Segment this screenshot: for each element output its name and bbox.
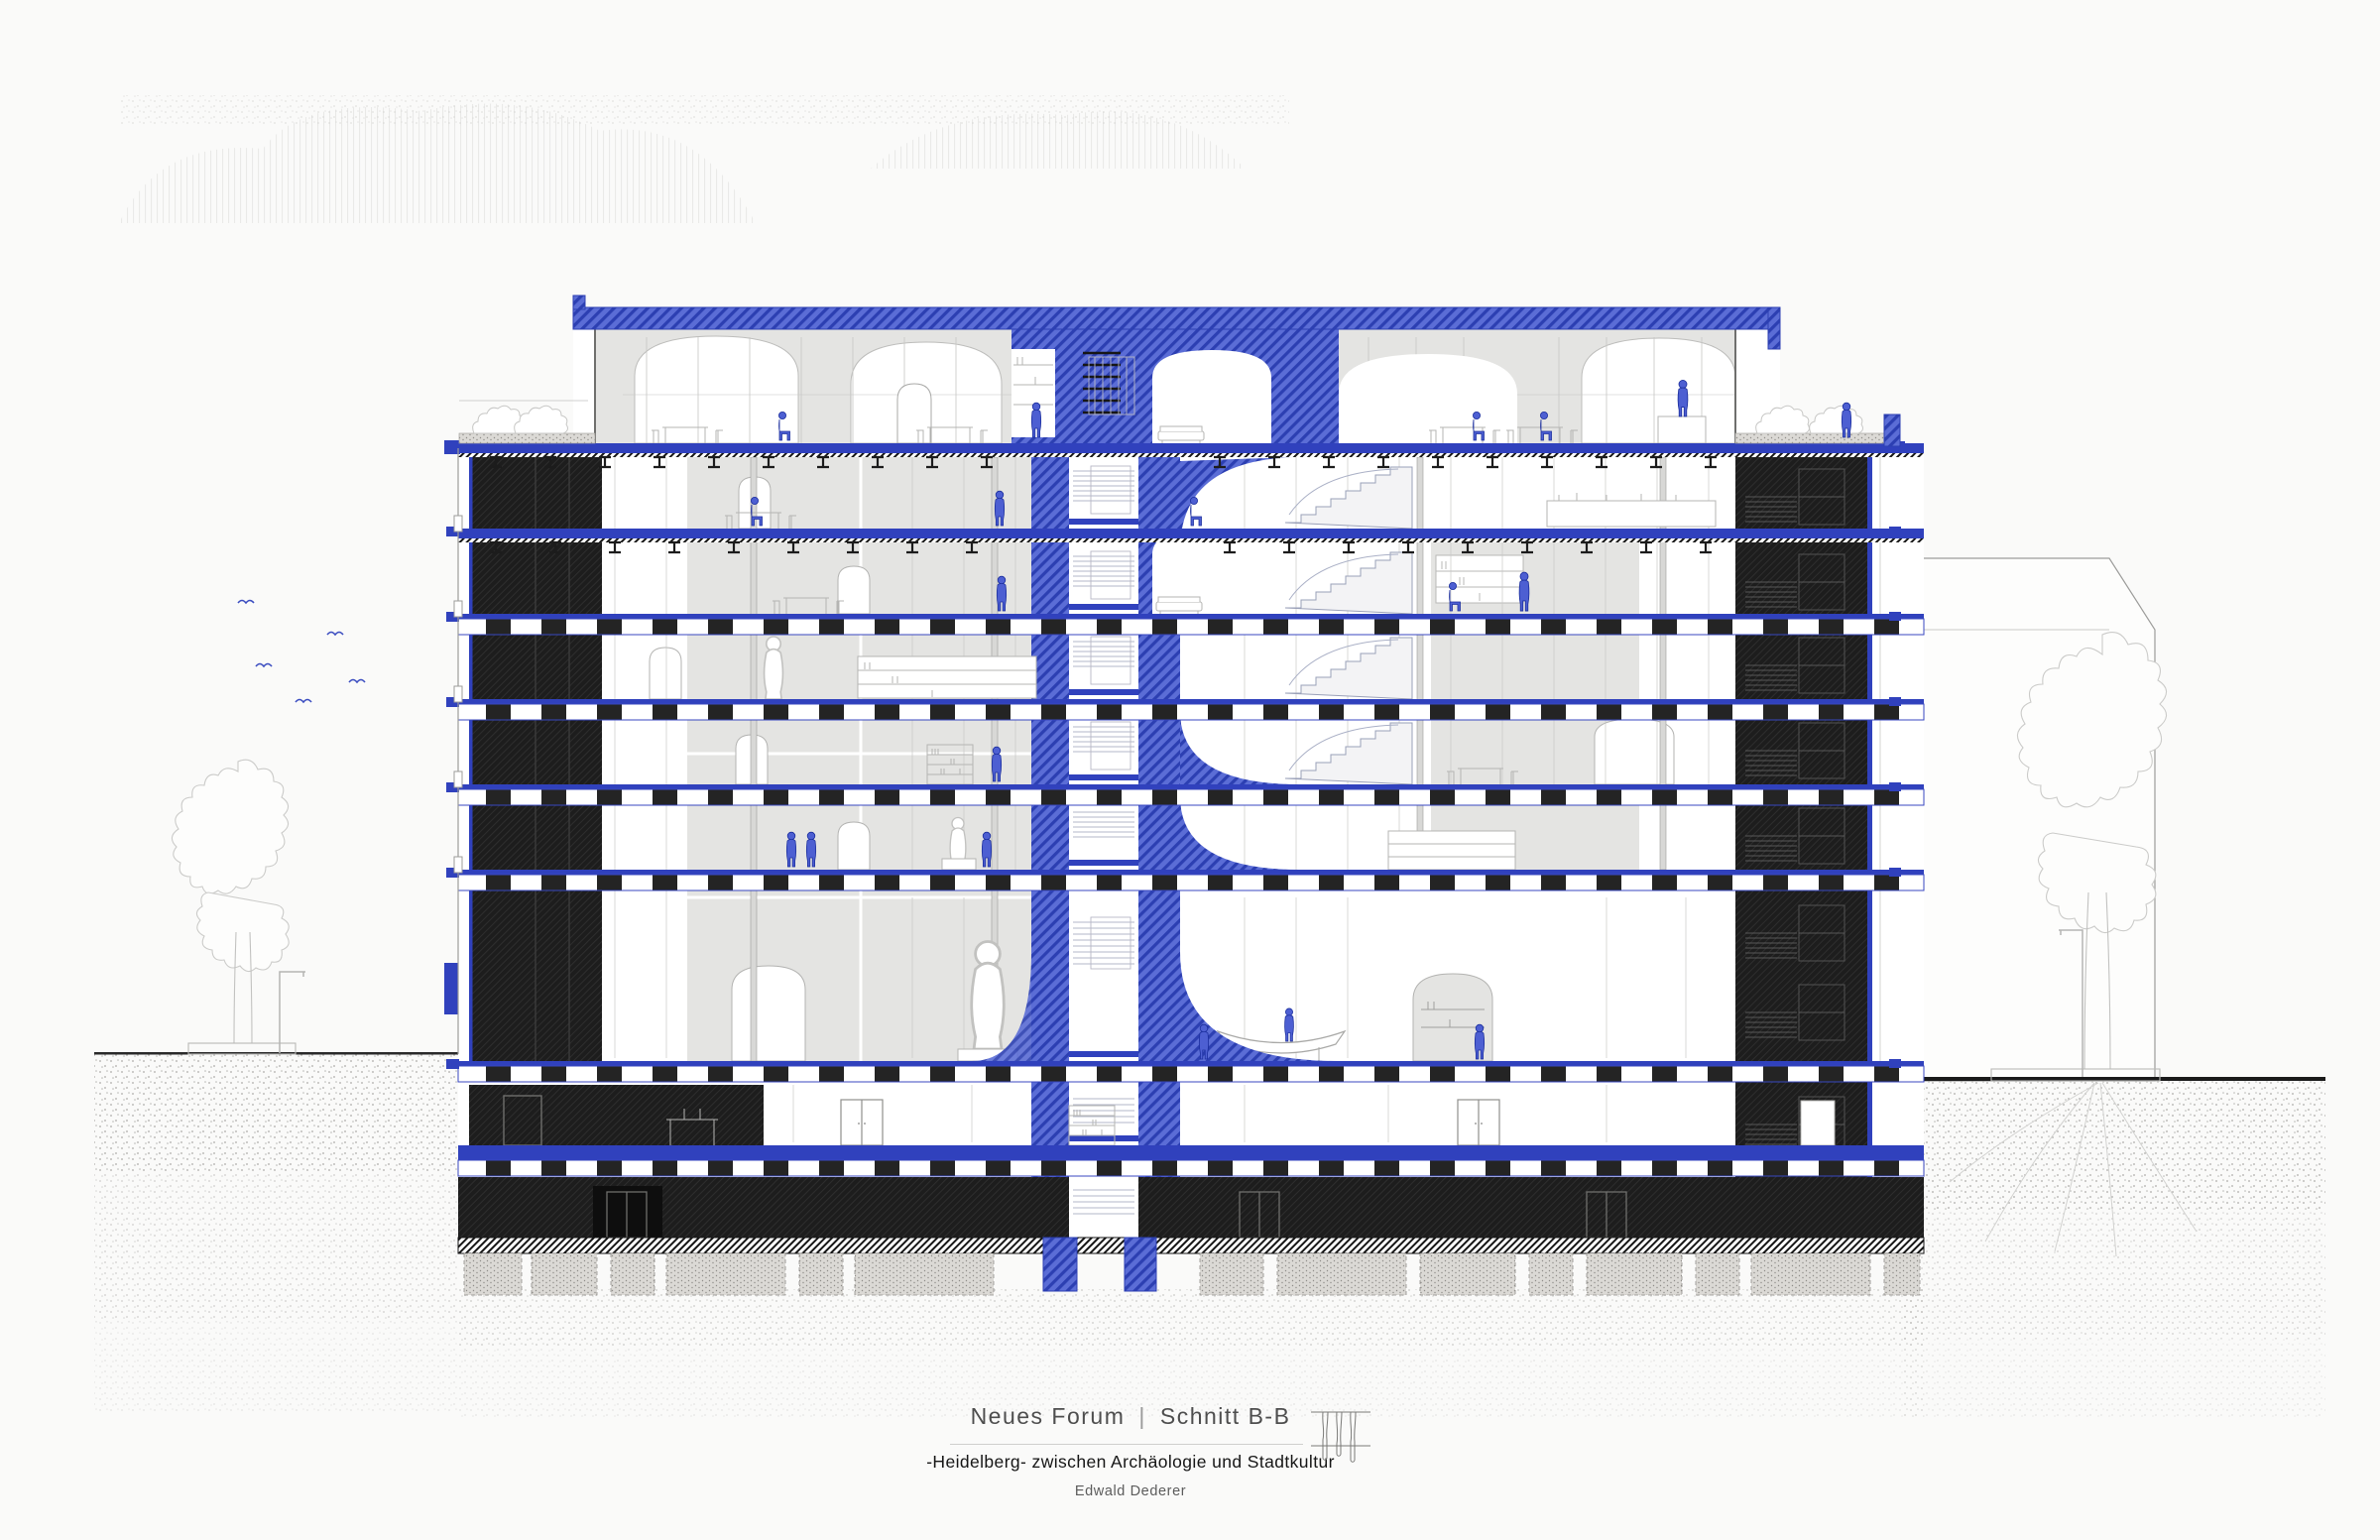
birds [238,601,365,703]
sky-hatch-clouds [119,95,1289,223]
practice-logo-icon [1311,1406,1374,1468]
title-block: Neues Forum|Schnitt B-B [892,1403,1368,1430]
title-divider: | [1125,1403,1159,1429]
sheet-name: Schnitt B-B [1160,1403,1291,1429]
project-name: Neues Forum [971,1403,1126,1429]
foundation [458,1238,1924,1295]
ground-right [1904,1077,2325,1418]
building-section-drawing [0,0,2380,1540]
drawing-sheet: Neues Forum|Schnitt B-B -Heidelberg- zwi… [0,0,2380,1540]
building-section [444,296,1924,1295]
ground-left [94,1052,458,1411]
tree-left [172,760,296,1054]
drawing-author: Edwald Dederer [1031,1483,1230,1499]
street-lamp-left [280,972,305,1053]
title-rule [950,1444,1303,1445]
basement [458,1177,1924,1238]
drawing-title: Neues Forum|Schnitt B-B [892,1403,1368,1430]
ground-below-building [458,1289,1924,1418]
